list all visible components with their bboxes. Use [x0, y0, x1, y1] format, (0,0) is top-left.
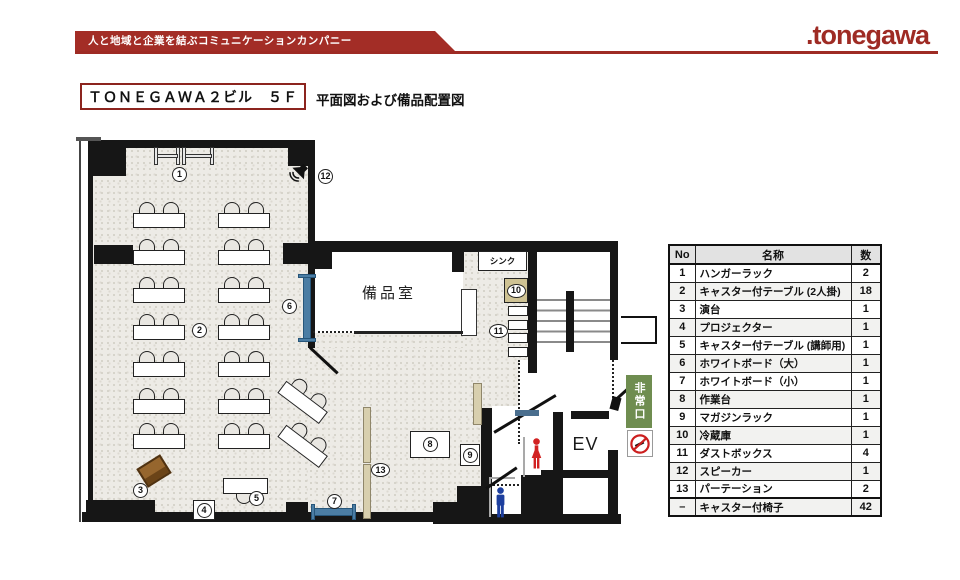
wall-segment	[541, 470, 609, 478]
dust-box	[508, 333, 528, 343]
wall-segment	[308, 241, 332, 269]
equipment-cell-cnt: 1	[851, 318, 881, 336]
equipment-cell-cnt: 2	[851, 264, 881, 282]
marker-12: 12	[318, 169, 333, 184]
equipment-cell-name: 作業台	[695, 390, 851, 408]
equipment-cell-name: プロジェクター	[695, 318, 851, 336]
col-name: 名称	[695, 245, 851, 264]
marker-11: 11	[489, 324, 508, 338]
equipment-cell-name: キャスター付テーブル (2人掛)	[695, 282, 851, 300]
wall-segment	[88, 140, 126, 176]
whiteboard-small-cap	[352, 504, 356, 520]
caster-table	[218, 351, 270, 377]
equipment-row: 4プロジェクター1	[669, 318, 881, 336]
caster-table	[218, 202, 270, 228]
equipment-cell-cnt: 1	[851, 336, 881, 354]
partition-panel	[363, 464, 371, 519]
equipment-cell-no: –	[669, 498, 695, 516]
caster-table	[218, 277, 270, 303]
equipment-cell-cnt: 1	[851, 462, 881, 480]
exit-wall-stub	[609, 396, 621, 411]
caster-table	[218, 239, 270, 265]
emergency-exit-label: 非常口	[631, 382, 647, 421]
wall-segment	[82, 512, 462, 522]
equipment-cell-no: 7	[669, 372, 695, 390]
col-no: No	[669, 245, 695, 264]
equipment-cell-name: 冷蔵庫	[695, 426, 851, 444]
caster-table-top	[133, 250, 185, 265]
wall-segment	[452, 241, 464, 272]
caster-table-top	[218, 325, 270, 340]
storage-door-leaf	[461, 289, 477, 336]
caster-table-top	[218, 213, 270, 228]
equipment-header-row: No 名称 数	[669, 245, 881, 264]
caster-table-top	[133, 213, 185, 228]
equipment-cell-cnt: 1	[851, 300, 881, 318]
teacher-table-top	[223, 478, 268, 494]
caster-table	[133, 202, 185, 228]
dotted-wall	[612, 360, 614, 398]
wall-segment	[571, 411, 609, 419]
equipment-cell-no: 6	[669, 354, 695, 372]
wall-segment	[94, 245, 133, 264]
marker-1: 1	[172, 167, 187, 182]
equipment-cell-name: ホワイトボード（小）	[695, 372, 851, 390]
equipment-cell-cnt: 1	[851, 408, 881, 426]
equipment-cell-name: ハンガーラック	[695, 264, 851, 282]
equipment-cell-no: 12	[669, 462, 695, 480]
caster-table	[218, 388, 270, 414]
equipment-cell-no: 11	[669, 444, 695, 462]
equipment-row: 7ホワイトボード（小）1	[669, 372, 881, 390]
equipment-row: 10冷蔵庫1	[669, 426, 881, 444]
equipment-row: 6ホワイトボード（大）1	[669, 354, 881, 372]
storage-door-opening	[313, 331, 356, 333]
equipment-cell-no: 10	[669, 426, 695, 444]
wall-segment	[566, 291, 574, 352]
marker-box-8: 8	[410, 431, 450, 458]
caster-table-top	[218, 288, 270, 303]
elevator-label: EV	[572, 434, 598, 455]
hanger-rack-bar	[157, 154, 178, 158]
equipment-cell-cnt: 4	[851, 444, 881, 462]
marker-10: 10	[507, 284, 526, 298]
wall-segment	[528, 245, 537, 373]
dust-box	[508, 306, 528, 316]
equipment-cell-no: 9	[669, 408, 695, 426]
caster-table	[133, 314, 185, 340]
caster-table-top	[218, 434, 270, 449]
marker-box-9: 9	[460, 444, 480, 466]
sink-counter: シンク	[478, 251, 527, 271]
hanger-rack-bar	[185, 154, 212, 158]
equipment-cell-name: マガジンラック	[695, 408, 851, 426]
caster-table	[133, 388, 185, 414]
equipment-row: 11ダストボックス4	[669, 444, 881, 462]
sink-label: シンク	[490, 255, 516, 267]
equipment-table: No 名称 数 1ハンガーラック22キャスター付テーブル (2人掛)183演台1…	[668, 244, 882, 517]
equipment-cell-name: パーテーション	[695, 480, 851, 498]
equipment-cell-cnt: 1	[851, 372, 881, 390]
marker-8: 8	[423, 437, 438, 452]
caster-table	[218, 423, 270, 449]
equipment-cell-name: キャスター付テーブル (講師用)	[695, 336, 851, 354]
caster-table-top	[133, 399, 185, 414]
wall-segment	[610, 245, 618, 360]
equipment-cell-no: 3	[669, 300, 695, 318]
marker-3: 3	[133, 483, 148, 498]
toilet-lintel	[515, 410, 539, 416]
man-icon	[493, 487, 508, 519]
marker-6: 6	[282, 299, 297, 314]
caster-table	[133, 239, 185, 265]
dust-box	[508, 320, 528, 330]
equipment-cell-no: 8	[669, 390, 695, 408]
equipment-rows: 1ハンガーラック22キャスター付テーブル (2人掛)183演台14プロジェクター…	[669, 264, 881, 516]
equipment-row: 12スピーカー1	[669, 462, 881, 480]
caster-table-top	[218, 250, 270, 265]
caster-table-top	[218, 362, 270, 377]
dust-box	[508, 347, 528, 357]
equipment-cell-cnt: 1	[851, 390, 881, 408]
equipment-cell-no: 13	[669, 480, 695, 498]
floor-texture	[463, 360, 519, 412]
storage-room: 備品室	[315, 252, 463, 333]
marker-4: 4	[197, 503, 212, 518]
caster-table-top	[133, 325, 185, 340]
caster-table-top	[218, 399, 270, 414]
wall-segment	[556, 416, 563, 472]
dotted-wall	[518, 360, 520, 444]
wall-segment	[286, 502, 308, 520]
caster-table	[133, 423, 185, 449]
equipment-cell-name: ダストボックス	[695, 444, 851, 462]
caster-table	[133, 277, 185, 303]
balcony-cap	[76, 137, 101, 141]
equipment-row: –キャスター付椅子42	[669, 498, 881, 516]
equipment-cell-no: 2	[669, 282, 695, 300]
equipment-row: 5キャスター付テーブル (講師用)1	[669, 336, 881, 354]
wall-segment	[88, 140, 93, 522]
wall-segment	[608, 450, 618, 514]
partition-panel	[363, 407, 371, 463]
storage-bottom-wall	[354, 331, 463, 334]
equipment-row: 2キャスター付テーブル (2人掛)18	[669, 282, 881, 300]
woman-icon	[529, 438, 544, 470]
equipment-row: 1ハンガーラック2	[669, 264, 881, 282]
equipment-cell-cnt: 42	[851, 498, 881, 516]
equipment-cell-name: キャスター付椅子	[695, 498, 851, 516]
caster-table-top	[133, 288, 185, 303]
marker-9: 9	[463, 448, 478, 463]
page-root: 人と地域と企業を結ぶコミュニケーションカンパニー .tonegawa ＴＯＮＥＧ…	[0, 0, 960, 580]
balcony-line	[79, 138, 81, 522]
toilet-partition-line	[523, 437, 525, 477]
no-smoking-icon	[629, 433, 651, 455]
equipment-cell-name: スピーカー	[695, 462, 851, 480]
equipment-cell-no: 5	[669, 336, 695, 354]
whiteboard-small	[314, 508, 353, 516]
equipment-cell-cnt: 1	[851, 354, 881, 372]
emergency-exit-sign: 非常口	[626, 375, 652, 428]
equipment-row: 9マガジンラック1	[669, 408, 881, 426]
exit-passage-outline	[621, 316, 657, 344]
caster-table-top	[133, 362, 185, 377]
marker-7: 7	[327, 494, 342, 509]
partition-panel	[473, 383, 482, 425]
equipment-cell-name: ホワイトボード（大）	[695, 354, 851, 372]
equipment-row: 3演台1	[669, 300, 881, 318]
caster-table	[218, 314, 270, 340]
marker-13: 13	[371, 463, 390, 477]
refrigerator: 10	[504, 278, 528, 303]
caster-table-top	[133, 434, 185, 449]
floor-texture	[308, 348, 481, 514]
col-count: 数	[851, 245, 881, 264]
whiteboard-large-cap	[298, 338, 316, 342]
whiteboard-large	[303, 277, 311, 339]
equipment-cell-cnt: 2	[851, 480, 881, 498]
equipment-row: 13パーテーション2	[669, 480, 881, 498]
equipment-cell-no: 1	[669, 264, 695, 282]
caster-table	[133, 351, 185, 377]
marker-box-4: 4	[193, 500, 215, 520]
storage-room-label: 備品室	[362, 282, 416, 303]
equipment-cell-no: 4	[669, 318, 695, 336]
marker-5: 5	[249, 491, 264, 506]
marker-2: 2	[192, 323, 207, 338]
wall-segment	[521, 475, 563, 514]
equipment-cell-name: 演台	[695, 300, 851, 318]
equipment-cell-cnt: 18	[851, 282, 881, 300]
elevator-room: EV	[563, 419, 608, 470]
equipment-row: 8作業台1	[669, 390, 881, 408]
wall-segment	[460, 514, 621, 524]
floor-texture	[315, 333, 463, 348]
equipment-cell-cnt: 1	[851, 426, 881, 444]
no-smoking-sign	[627, 430, 653, 457]
